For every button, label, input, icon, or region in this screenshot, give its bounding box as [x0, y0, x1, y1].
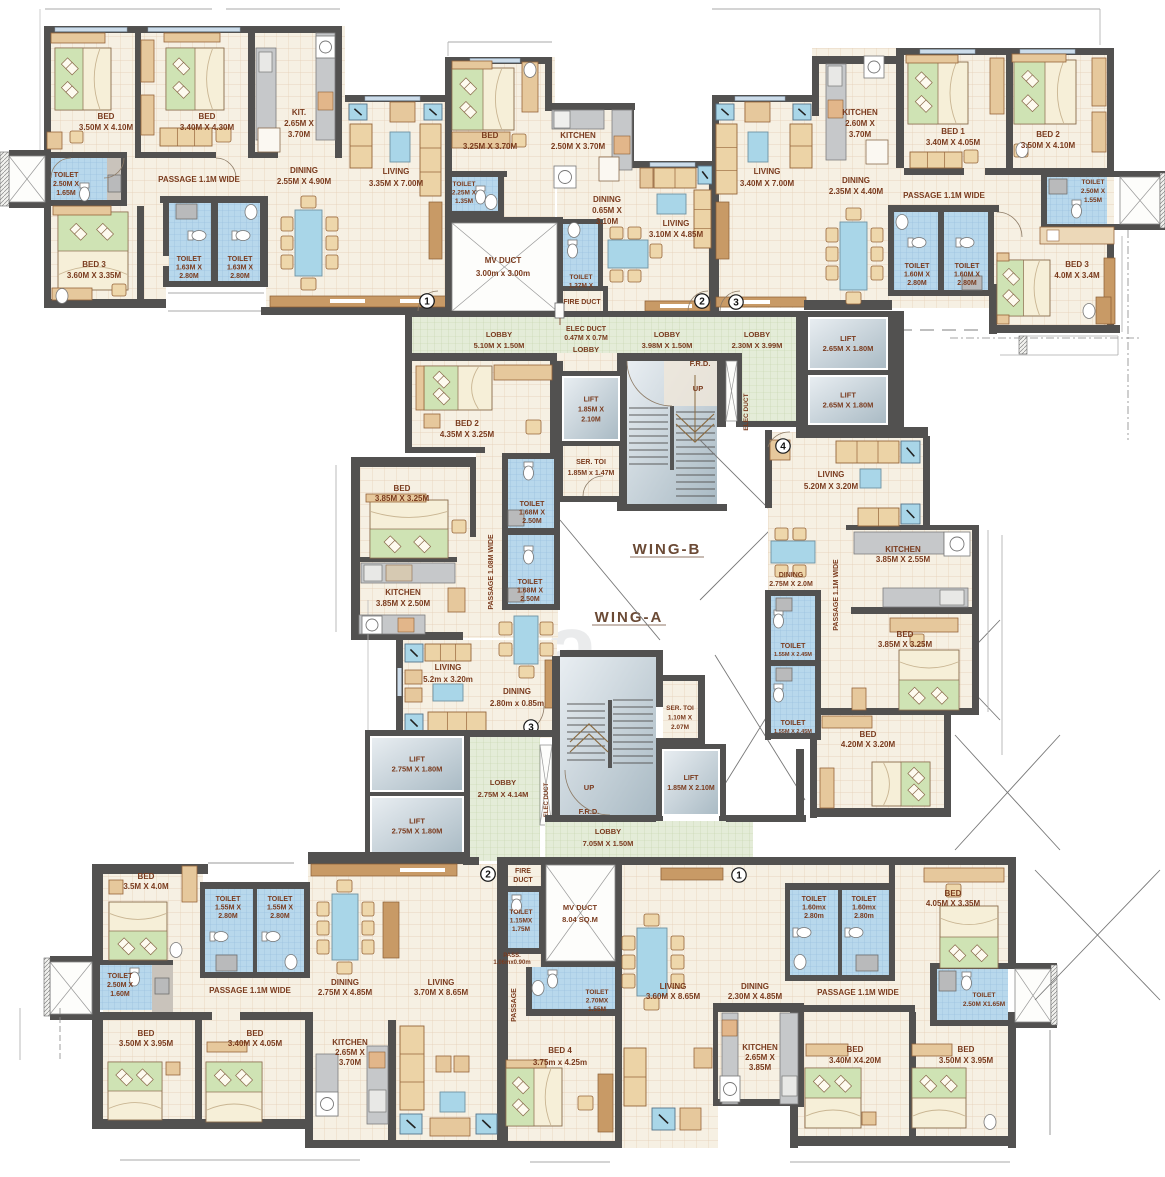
- svg-text:BED: BED: [860, 730, 877, 739]
- svg-text:LIVING: LIVING: [383, 167, 410, 176]
- svg-text:3: 3: [733, 297, 739, 308]
- svg-text:1.60M: 1.60M: [110, 991, 130, 998]
- svg-text:3.50M X 3.95M: 3.50M X 3.95M: [939, 1056, 994, 1065]
- svg-text:1.63M X: 1.63M X: [227, 265, 253, 272]
- svg-text:2.80M: 2.80M: [957, 280, 977, 287]
- svg-text:BED: BED: [482, 131, 499, 140]
- svg-text:2.10M: 2.10M: [581, 417, 601, 424]
- svg-text:3.85M X 2.50M: 3.85M X 2.50M: [376, 599, 431, 608]
- svg-text:3.10M: 3.10M: [596, 217, 619, 226]
- svg-text:SER. TOI: SER. TOI: [576, 459, 606, 466]
- svg-text:2.50M X 3.70M: 2.50M X 3.70M: [551, 142, 606, 151]
- svg-text:BED: BED: [138, 872, 155, 881]
- svg-text:BED 3: BED 3: [1065, 260, 1089, 269]
- svg-text:2.30M X 3.99M: 2.30M X 3.99M: [732, 341, 783, 350]
- svg-text:3.70M: 3.70M: [288, 130, 311, 139]
- svg-text:2.75M X 1.80M: 2.75M X 1.80M: [392, 765, 443, 774]
- svg-text:1: 1: [424, 296, 430, 307]
- svg-text:LIVING: LIVING: [660, 982, 687, 991]
- svg-text:1.55M: 1.55M: [1084, 197, 1102, 204]
- svg-text:3.60M X 3.35M: 3.60M X 3.35M: [67, 271, 122, 280]
- svg-text:1: 1: [736, 870, 742, 881]
- svg-text:BED: BED: [199, 112, 216, 121]
- svg-text:DINING: DINING: [842, 176, 870, 185]
- svg-text:3.85M X 3.25M: 3.85M X 3.25M: [375, 494, 430, 503]
- svg-text:LIVING: LIVING: [428, 978, 455, 987]
- svg-text:1.55M: 1.55M: [588, 1006, 606, 1013]
- svg-text:KITCHEN: KITCHEN: [385, 588, 421, 597]
- svg-text:1.85M x 1.47M: 1.85M x 1.47M: [568, 470, 615, 477]
- svg-text:2: 2: [485, 869, 491, 880]
- svg-text:2.75M X 1.80M: 2.75M X 1.80M: [392, 827, 443, 836]
- svg-text:UP: UP: [693, 384, 703, 393]
- svg-text:LOBBY: LOBBY: [654, 330, 680, 339]
- svg-text:LIFT: LIFT: [409, 755, 425, 764]
- svg-text:3.00m x 3.00m: 3.00m x 3.00m: [476, 269, 530, 278]
- svg-text:LIFT: LIFT: [684, 775, 699, 782]
- svg-text:2.80m: 2.80m: [804, 913, 824, 920]
- svg-text:3.5M X 4.0M: 3.5M X 4.0M: [123, 882, 169, 891]
- svg-text:1.63M X: 1.63M X: [176, 265, 202, 272]
- svg-text:2.70MX: 2.70MX: [586, 998, 609, 1005]
- svg-text:3.40M X 4.30M: 3.40M X 4.30M: [180, 123, 235, 132]
- svg-text:LIFT: LIFT: [584, 397, 599, 404]
- svg-text:SER. TOI: SER. TOI: [666, 705, 694, 712]
- svg-text:TOILET: TOILET: [216, 896, 241, 903]
- svg-text:2.07M: 2.07M: [671, 724, 689, 731]
- svg-text:KITCHEN: KITCHEN: [885, 545, 921, 554]
- svg-text:KIT.: KIT.: [292, 108, 306, 117]
- svg-text:2.75M X 4.85M: 2.75M X 4.85M: [318, 988, 373, 997]
- svg-text:PASSAGE 1.1M WIDE: PASSAGE 1.1M WIDE: [817, 988, 899, 997]
- svg-text:3.10M X 4.85M: 3.10M X 4.85M: [649, 230, 704, 239]
- svg-text:2.65M X 1.80M: 2.65M X 1.80M: [823, 344, 874, 353]
- svg-text:1.60M X: 1.60M X: [954, 272, 980, 279]
- svg-text:3.50M X 4.10M: 3.50M X 4.10M: [79, 123, 134, 132]
- svg-text:LIVING: LIVING: [818, 470, 845, 479]
- svg-text:TOILET: TOILET: [108, 973, 133, 980]
- svg-text:PASSAGE: PASSAGE: [511, 988, 518, 1022]
- svg-text:2.50M: 2.50M: [522, 518, 542, 525]
- svg-text:3.98M X 1.50M: 3.98M X 1.50M: [642, 341, 693, 350]
- svg-text:1.75M: 1.75M: [512, 926, 530, 933]
- svg-text:TOILET: TOILET: [852, 896, 877, 903]
- svg-text:3.40M X 4.05M: 3.40M X 4.05M: [228, 1039, 283, 1048]
- svg-text:3.50M X 3.95M: 3.50M X 3.95M: [119, 1039, 174, 1048]
- svg-text:LOBBY: LOBBY: [490, 778, 516, 787]
- svg-text:TOILET: TOILET: [54, 172, 79, 179]
- svg-text:3.40M X 7.00M: 3.40M X 7.00M: [740, 179, 795, 188]
- svg-text:LOBBY: LOBBY: [486, 330, 512, 339]
- svg-text:DINING: DINING: [593, 195, 621, 204]
- svg-text:PASSAGE 1.1M WIDE: PASSAGE 1.1M WIDE: [158, 175, 240, 184]
- svg-text:2.50M X: 2.50M X: [107, 982, 133, 989]
- svg-text:1.55M X: 1.55M X: [267, 905, 293, 912]
- svg-text:2.55M X 4.90M: 2.55M X 4.90M: [277, 177, 332, 186]
- svg-text:BED 1: BED 1: [941, 127, 965, 136]
- svg-text:3.70M: 3.70M: [339, 1058, 362, 1067]
- svg-text:DINING: DINING: [741, 982, 769, 991]
- svg-text:LIVING: LIVING: [663, 219, 690, 228]
- svg-text:DINING: DINING: [331, 978, 359, 987]
- svg-text:BED: BED: [945, 889, 962, 898]
- svg-text:3.75m x 4.25m: 3.75m x 4.25m: [533, 1058, 587, 1067]
- svg-text:2.50M: 2.50M: [520, 596, 540, 603]
- svg-text:TOILET: TOILET: [520, 501, 545, 508]
- svg-text:3.40M X4.20M: 3.40M X4.20M: [829, 1056, 881, 1065]
- svg-text:3.50M X 4.10M: 3.50M X 4.10M: [1021, 141, 1076, 150]
- svg-text:3.70M: 3.70M: [849, 130, 872, 139]
- svg-text:1.55M X 2.45M: 1.55M X 2.45M: [774, 729, 812, 735]
- svg-text:ELEC DUCT: ELEC DUCT: [544, 783, 550, 818]
- svg-text:KITCHEN: KITCHEN: [560, 131, 596, 140]
- svg-text:7.05M X 1.50M: 7.05M X 1.50M: [583, 839, 634, 848]
- svg-text:TOILET: TOILET: [228, 256, 253, 263]
- svg-text:LIFT: LIFT: [409, 817, 425, 826]
- svg-text:5.20M X 3.20M: 5.20M X 3.20M: [804, 482, 859, 491]
- svg-text:2.35M X 4.40M: 2.35M X 4.40M: [829, 187, 884, 196]
- svg-text:LOBBY: LOBBY: [595, 827, 621, 836]
- svg-text:MV DUCT: MV DUCT: [485, 256, 522, 265]
- svg-text:PASS.: PASS.: [503, 953, 521, 959]
- svg-text:TOILET: TOILET: [510, 909, 533, 916]
- svg-text:3.85M: 3.85M: [749, 1063, 772, 1072]
- svg-text:LIVING: LIVING: [435, 663, 462, 672]
- svg-text:1.85M X 2.10M: 1.85M X 2.10M: [667, 785, 715, 792]
- svg-text:F.R.D.: F.R.D.: [579, 807, 600, 816]
- svg-text:1.37M X: 1.37M X: [569, 283, 594, 290]
- svg-text:1.06mx0.90m: 1.06mx0.90m: [493, 960, 530, 966]
- svg-text:2.75M X 4.14M: 2.75M X 4.14M: [478, 790, 529, 799]
- svg-text:TOILET: TOILET: [781, 643, 806, 650]
- svg-text:WING-B: WING-B: [633, 541, 702, 558]
- svg-text:TOILET: TOILET: [802, 896, 827, 903]
- svg-text:TOILET: TOILET: [453, 181, 476, 188]
- svg-text:KITCHEN: KITCHEN: [842, 108, 878, 117]
- svg-text:2.80M: 2.80M: [218, 913, 238, 920]
- svg-text:4.0M X 3.4M: 4.0M X 3.4M: [1054, 271, 1100, 280]
- svg-text:8.04 SQ.M: 8.04 SQ.M: [562, 915, 598, 924]
- svg-text:1.68M X: 1.68M X: [517, 588, 543, 595]
- svg-text:2: 2: [699, 296, 705, 307]
- svg-text:3.35M X 7.00M: 3.35M X 7.00M: [369, 179, 424, 188]
- svg-text:2.50M X1.65M: 2.50M X1.65M: [963, 1001, 1005, 1008]
- svg-text:DINING: DINING: [779, 572, 804, 579]
- svg-text:2.75M X 2.0M: 2.75M X 2.0M: [769, 581, 813, 588]
- svg-text:4: 4: [780, 441, 786, 452]
- svg-text:BED 2: BED 2: [455, 419, 479, 428]
- svg-text:3.25M X 3.70M: 3.25M X 3.70M: [463, 142, 518, 151]
- svg-text:TOILET: TOILET: [955, 263, 980, 270]
- svg-text:BED: BED: [897, 630, 914, 639]
- svg-text:FIRE: FIRE: [515, 868, 531, 875]
- svg-text:PASSAGE 1.1M WIDE: PASSAGE 1.1M WIDE: [833, 559, 840, 631]
- svg-text:TOILET: TOILET: [570, 274, 593, 281]
- svg-text:2.80m: 2.80m: [854, 913, 874, 920]
- svg-text:TOILET: TOILET: [973, 992, 996, 999]
- svg-text:2.80M: 2.80M: [230, 273, 250, 280]
- svg-text:LIVING: LIVING: [754, 167, 781, 176]
- svg-text:3.85M X 3.25M: 3.85M X 3.25M: [878, 640, 933, 649]
- svg-text:4.35M X 3.25M: 4.35M X 3.25M: [440, 430, 495, 439]
- svg-text:3.60M X 8.65M: 3.60M X 8.65M: [646, 992, 701, 1001]
- svg-text:TOILET: TOILET: [781, 720, 806, 727]
- svg-text:BED 3: BED 3: [82, 260, 106, 269]
- svg-text:PASSAGE 1.1M WIDE: PASSAGE 1.1M WIDE: [903, 191, 985, 200]
- svg-text:2.65M X 1.80M: 2.65M X 1.80M: [823, 401, 874, 410]
- svg-text:DINING: DINING: [290, 166, 318, 175]
- svg-text:BED 2: BED 2: [1036, 130, 1060, 139]
- svg-text:PASSAGE 1.1M WIDE: PASSAGE 1.1M WIDE: [209, 986, 291, 995]
- svg-text:2.80M: 2.80M: [907, 280, 927, 287]
- svg-text:UP: UP: [584, 783, 594, 792]
- svg-text:1.55M X: 1.55M X: [215, 905, 241, 912]
- svg-text:1.60M X: 1.60M X: [904, 272, 930, 279]
- svg-text:ELEC DUCT: ELEC DUCT: [743, 393, 750, 430]
- svg-text:1.68M X: 1.68M X: [519, 510, 545, 517]
- svg-text:4.20M X 3.20M: 4.20M X 3.20M: [841, 740, 896, 749]
- svg-text:LIFT: LIFT: [840, 334, 856, 343]
- svg-text:LOBBY: LOBBY: [744, 330, 770, 339]
- svg-text:TOILET: TOILET: [1082, 179, 1105, 186]
- svg-text:WING-A: WING-A: [595, 609, 664, 626]
- svg-text:1.35M: 1.35M: [455, 198, 473, 205]
- svg-text:1.15MX: 1.15MX: [510, 918, 533, 925]
- svg-text:KITCHEN: KITCHEN: [742, 1043, 778, 1052]
- svg-text:PASSAGE 1.08M WIDE: PASSAGE 1.08M WIDE: [488, 534, 495, 610]
- svg-text:0.47M X 0.7M: 0.47M X 0.7M: [564, 335, 608, 342]
- svg-text:TOILET: TOILET: [586, 989, 609, 996]
- svg-text:1.60mx: 1.60mx: [802, 905, 826, 912]
- svg-text:BED: BED: [247, 1029, 264, 1038]
- svg-text:TOILET: TOILET: [905, 263, 930, 270]
- svg-text:FIRE DUCT: FIRE DUCT: [563, 299, 601, 306]
- svg-text:BED 4: BED 4: [548, 1046, 572, 1055]
- svg-text:1.60mx: 1.60mx: [852, 905, 876, 912]
- svg-text:3.85M X 2.55M: 3.85M X 2.55M: [876, 555, 931, 564]
- svg-text:BED: BED: [98, 112, 115, 121]
- svg-text:KITCHEN: KITCHEN: [332, 1038, 368, 1047]
- svg-text:TOILET: TOILET: [518, 579, 543, 586]
- svg-text:2.65M X: 2.65M X: [284, 119, 314, 128]
- svg-text:2.50M X: 2.50M X: [53, 181, 79, 188]
- svg-text:BED: BED: [394, 484, 411, 493]
- svg-text:2.25M X: 2.25M X: [452, 190, 477, 197]
- svg-text:2.65M X: 2.65M X: [745, 1053, 775, 1062]
- svg-text:2.80M: 2.80M: [270, 913, 290, 920]
- svg-text:1.65M: 1.65M: [56, 190, 76, 197]
- svg-text:2.60M X: 2.60M X: [845, 119, 875, 128]
- svg-text:1.10M X: 1.10M X: [668, 715, 693, 722]
- svg-text:BED: BED: [958, 1045, 975, 1054]
- svg-text:LIFT: LIFT: [840, 391, 856, 400]
- svg-text:DUCT: DUCT: [513, 877, 533, 884]
- svg-text:2.50M X: 2.50M X: [1081, 188, 1106, 195]
- svg-text:2.80M: 2.80M: [179, 273, 199, 280]
- svg-text:LOBBY: LOBBY: [573, 345, 599, 354]
- svg-text:5.10M X 1.50M: 5.10M X 1.50M: [474, 341, 525, 350]
- svg-text:MV DUCT: MV DUCT: [563, 903, 598, 912]
- svg-text:ELEC DUCT: ELEC DUCT: [566, 326, 607, 333]
- svg-text:F.R.D.: F.R.D.: [690, 359, 711, 368]
- svg-text:5.2m x 3.20m: 5.2m x 3.20m: [423, 675, 473, 684]
- svg-text:3.40M X 4.05M: 3.40M X 4.05M: [926, 138, 981, 147]
- svg-text:BED: BED: [138, 1029, 155, 1038]
- svg-text:1.85M X: 1.85M X: [578, 407, 604, 414]
- svg-text:2.65M X: 2.65M X: [335, 1048, 365, 1057]
- svg-text:DINING: DINING: [503, 687, 531, 696]
- svg-text:4.05M X 3.35M: 4.05M X 3.35M: [926, 899, 981, 908]
- svg-text:BED: BED: [847, 1045, 864, 1054]
- svg-text:2.30M X 4.85M: 2.30M X 4.85M: [728, 992, 783, 1001]
- svg-text:0.65M X: 0.65M X: [592, 206, 622, 215]
- svg-text:2.80m x 0.85m: 2.80m x 0.85m: [490, 699, 544, 708]
- svg-text:3.70M X 8.65M: 3.70M X 8.65M: [414, 988, 469, 997]
- svg-text:TOILET: TOILET: [268, 896, 293, 903]
- svg-text:TOILET: TOILET: [177, 256, 202, 263]
- svg-text:1.55M X 2.45M: 1.55M X 2.45M: [774, 652, 812, 658]
